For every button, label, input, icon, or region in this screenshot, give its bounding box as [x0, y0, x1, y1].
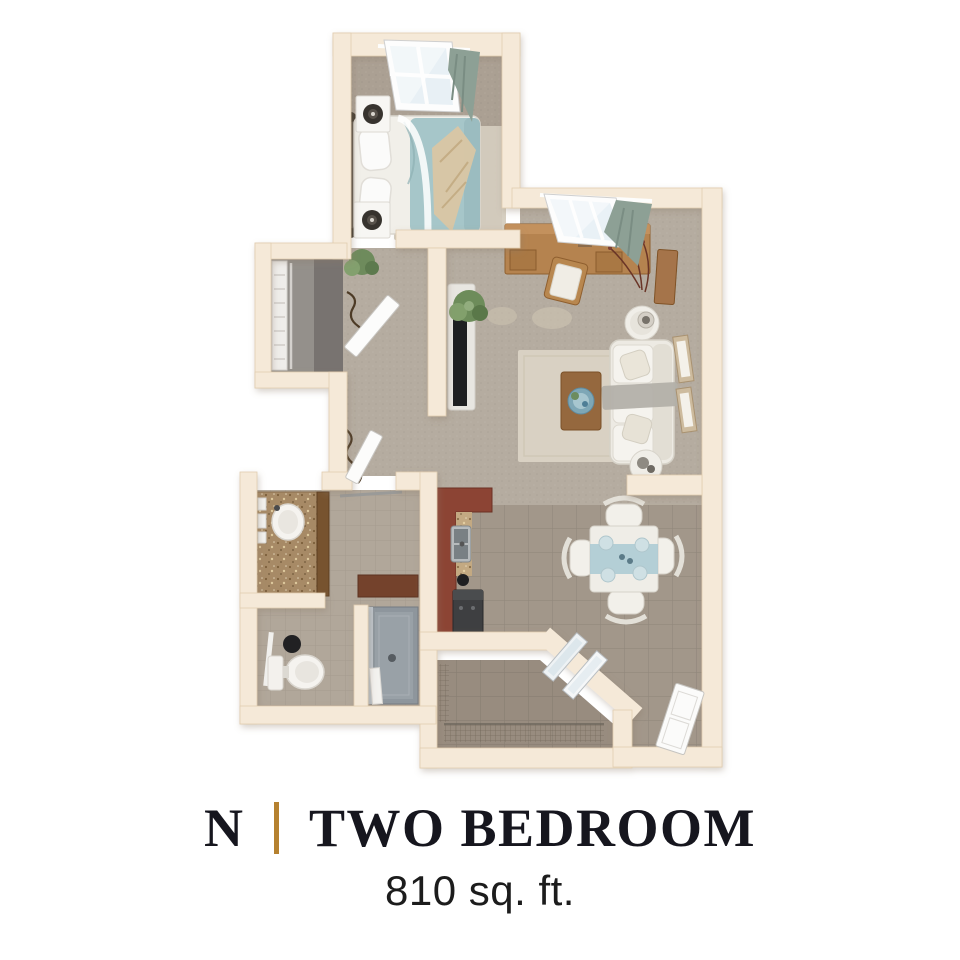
pillow: [358, 127, 392, 172]
patio-screen-left: [439, 664, 449, 722]
page: N TWO BEDROOM 810 sq. ft.: [0, 0, 960, 960]
caption: N TWO BEDROOM 810 sq. ft.: [0, 796, 960, 914]
toilet: [268, 655, 324, 690]
dining-table: [590, 526, 658, 592]
floor-plan-svg: [0, 0, 960, 792]
stove: [453, 590, 483, 634]
patio-screen: [444, 724, 604, 742]
toiletries: [258, 498, 266, 543]
sofa-throw: [601, 382, 678, 410]
plan-area: 810 sq. ft.: [0, 868, 960, 914]
waste-bin: [283, 635, 301, 653]
carpet-patch: [532, 307, 572, 329]
caption-title: N TWO BEDROOM: [0, 796, 960, 860]
shower: [368, 607, 418, 704]
shower-drain: [388, 654, 396, 662]
vanity-cabinet: [317, 492, 329, 596]
sofa: [601, 340, 678, 464]
nightstand-bottom: [354, 202, 390, 238]
floor-plan-image: [0, 0, 960, 792]
carpet-patch: [487, 307, 517, 325]
console-table: [654, 249, 678, 304]
nightstand-top: [356, 96, 390, 132]
tv: [453, 318, 467, 406]
kitchen-sink: [451, 526, 471, 562]
kitchen-pot: [457, 574, 469, 586]
bathroom-wood-counter: [358, 575, 418, 597]
plan-letter: N: [204, 796, 244, 860]
side-table-lamp: [625, 306, 659, 340]
caption-divider-bar: [274, 802, 279, 854]
sink-faucet: [274, 505, 280, 511]
coffee-table: [561, 372, 601, 430]
plan-name: TWO BEDROOM: [309, 796, 756, 860]
closet-shadow: [314, 259, 343, 372]
